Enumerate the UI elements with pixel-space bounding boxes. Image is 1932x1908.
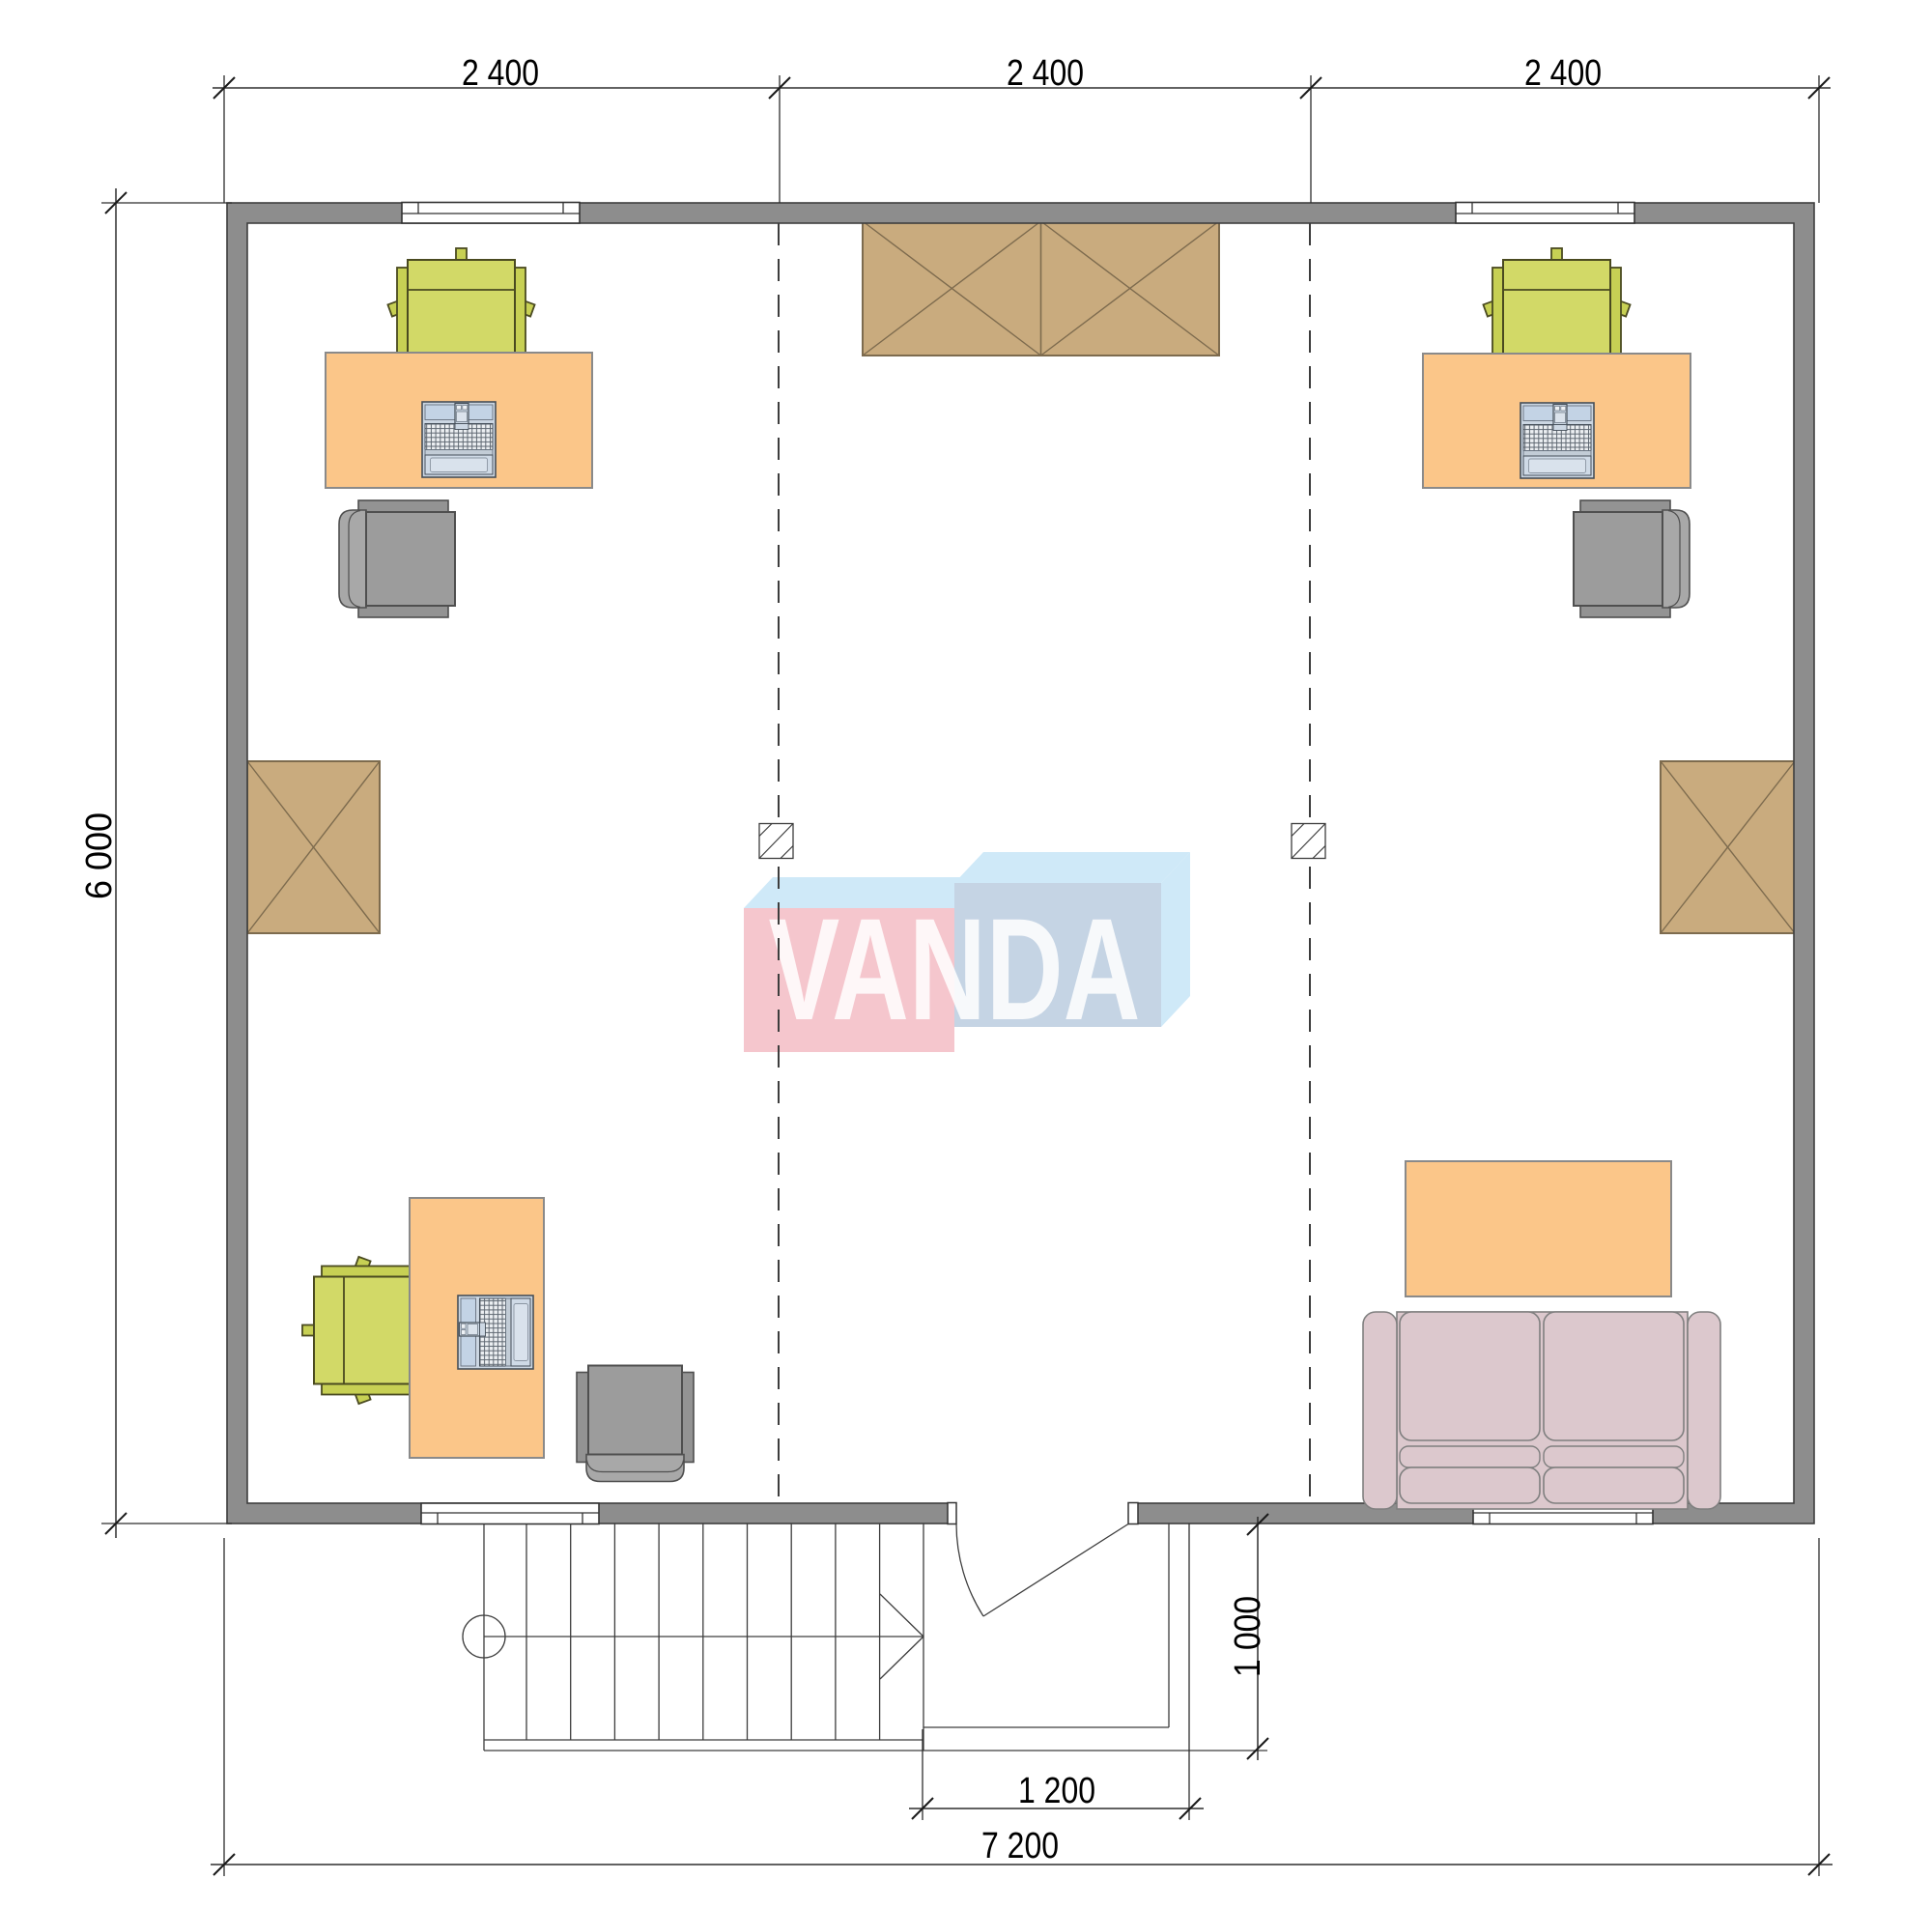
svg-text:2 400: 2 400 xyxy=(1007,53,1084,94)
svg-text:6 000: 6 000 xyxy=(79,812,120,899)
svg-text:2 400: 2 400 xyxy=(462,53,539,94)
svg-text:2 400: 2 400 xyxy=(1524,53,1602,94)
svg-text:VANDA: VANDA xyxy=(769,888,1141,1050)
svg-text:1 000: 1 000 xyxy=(1228,1596,1268,1677)
svg-text:7 200: 7 200 xyxy=(981,1826,1059,1866)
svg-text:1 200: 1 200 xyxy=(1018,1771,1095,1811)
